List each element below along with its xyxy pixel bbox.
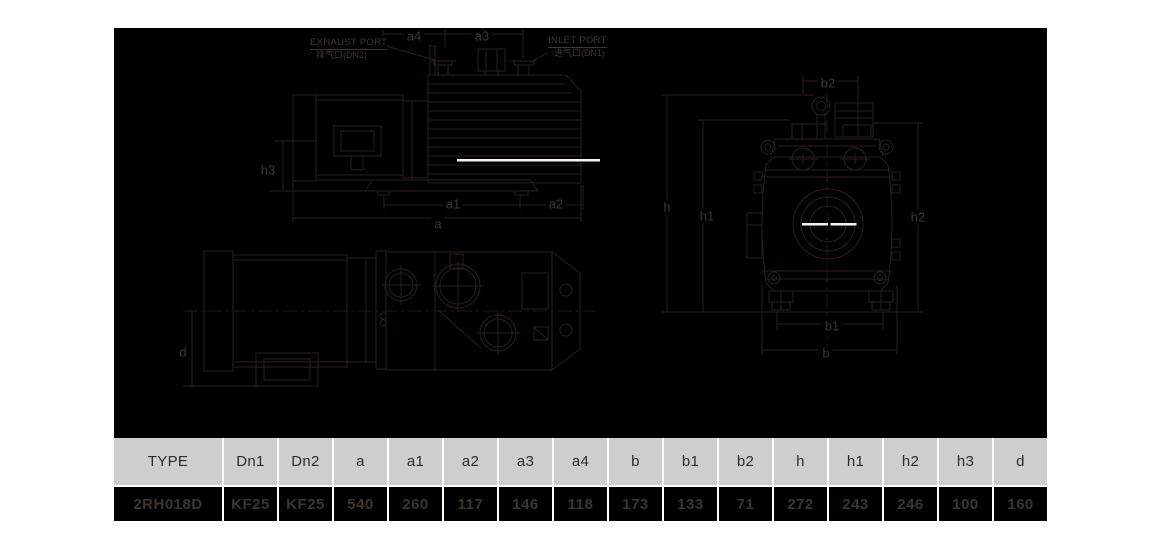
- table-value-dn2: KF25: [279, 487, 332, 521]
- inlet-port-callout: INLET PORT 进气口(DN1): [548, 35, 607, 59]
- table-header-b2: b2: [719, 438, 772, 485]
- table-header-a4: a4: [554, 438, 607, 485]
- pump-line-drawing: [114, 28, 1047, 438]
- highlight-line-front-right: [831, 223, 857, 226]
- table-header-b: b: [609, 438, 662, 485]
- pump-spec-sheet: EXHAUST PORT 排气口(DN2) INLET PORT 进气口(DN1…: [114, 28, 1047, 521]
- exhaust-port-label: EXHAUST PORT: [310, 37, 387, 50]
- dim-label-a2: a2: [546, 197, 566, 212]
- side-view: [270, 46, 581, 195]
- exhaust-port-callout: EXHAUST PORT 排气口(DN2): [310, 37, 387, 61]
- table-value-a4: 118: [554, 487, 607, 521]
- table-value-h3: 100: [939, 487, 992, 521]
- table-header-a1: a1: [389, 438, 442, 485]
- dim-label-b2: b2: [818, 76, 838, 91]
- dim-label-a3: a3: [472, 29, 492, 44]
- table-value-a: 540: [334, 487, 387, 521]
- plan-view: [183, 251, 595, 386]
- table-value-h2: 246: [884, 487, 937, 521]
- table-header-h3: h3: [939, 438, 992, 485]
- table-value-type: 2RH018D: [114, 487, 222, 521]
- inlet-port-label: INLET PORT: [548, 35, 607, 48]
- dim-label-b1: b1: [822, 319, 842, 334]
- dim-label-h: h: [660, 200, 673, 215]
- table-value-a2: 117: [444, 487, 497, 521]
- table-value-b1: 133: [664, 487, 717, 521]
- highlight-line-side: [457, 159, 600, 162]
- technical-drawing: EXHAUST PORT 排气口(DN2) INLET PORT 进气口(DN1…: [114, 28, 1047, 438]
- table-value-a3: 146: [499, 487, 552, 521]
- inlet-port-label-cn: 进气口(DN1): [548, 48, 607, 59]
- table-value-h1: 243: [829, 487, 882, 521]
- table-value-b2: 71: [719, 487, 772, 521]
- dim-label-b: b: [819, 346, 832, 361]
- table-header-h2: h2: [884, 438, 937, 485]
- dim-label-h3: h3: [258, 163, 278, 178]
- table-header-d: d: [994, 438, 1047, 485]
- dim-label-a: a: [431, 217, 444, 232]
- table-header-h: h: [774, 438, 827, 485]
- page: EXHAUST PORT 排气口(DN2) INLET PORT 进气口(DN1…: [0, 0, 1160, 550]
- table-value-h: 272: [774, 487, 827, 521]
- dim-label-d: d: [176, 345, 189, 360]
- table-value-a1: 260: [389, 487, 442, 521]
- table-header-b1: b1: [664, 438, 717, 485]
- table-value-b: 173: [609, 487, 662, 521]
- table-value-d: 160: [994, 487, 1047, 521]
- table-header-h1: h1: [829, 438, 882, 485]
- dim-label-h1: h1: [697, 209, 717, 224]
- dimension-table: TYPE Dn1 Dn2 a a1 a2 a3 a4 b b1 b2 h h1 …: [114, 438, 1047, 521]
- dim-label-a1: a1: [443, 197, 463, 212]
- table-value-dn1: KF25: [224, 487, 277, 521]
- dim-label-h2: h2: [908, 210, 928, 225]
- table-header-a: a: [334, 438, 387, 485]
- table-header-a3: a3: [499, 438, 552, 485]
- table-header-dn1: Dn1: [224, 438, 277, 485]
- highlight-line-front-left: [802, 223, 828, 226]
- table-header-dn2: Dn2: [279, 438, 332, 485]
- exhaust-port-label-cn: 排气口(DN2): [310, 50, 387, 61]
- dim-label-a4: a4: [404, 29, 424, 44]
- table-header-type: TYPE: [114, 438, 222, 485]
- table-header-a2: a2: [444, 438, 497, 485]
